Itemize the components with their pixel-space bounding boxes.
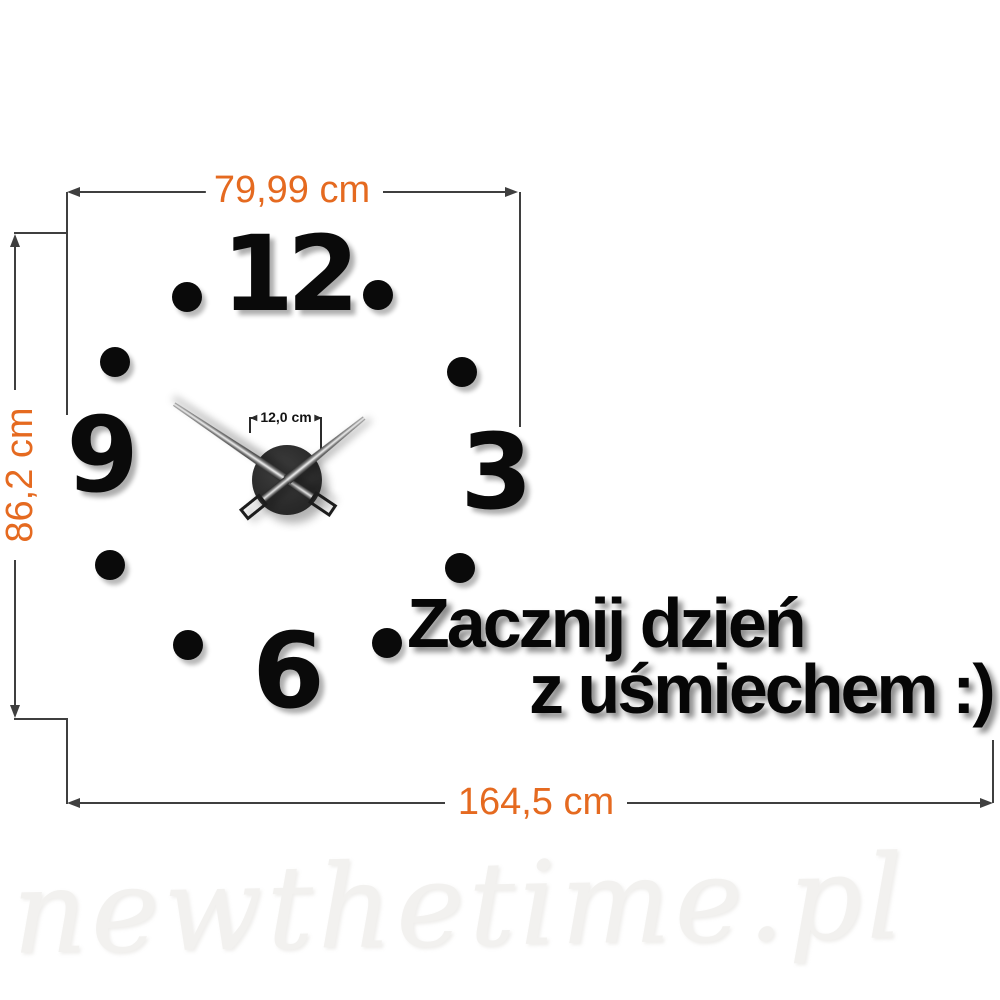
slogan-line-2: z uśmiechem :) [529, 654, 993, 724]
slogan-line-1: Zacznij dzień [407, 588, 804, 658]
hour-dot-2 [447, 357, 477, 387]
top-dimension-line-right [383, 191, 505, 193]
hour-dot-7 [173, 630, 203, 660]
hour-dot-1 [363, 280, 393, 310]
top-dimension-arrow-right-icon [505, 187, 518, 197]
clock-number-12: 12 [222, 222, 353, 326]
hub-extension-line-right [320, 417, 322, 452]
left-dimension-tick-bottom [14, 718, 68, 720]
clock-number-9: 9 [66, 403, 131, 507]
bottom-extension-line-right [992, 740, 994, 803]
hour-dot-11 [172, 282, 202, 312]
hub-dimension-label: 12,0 cm [257, 409, 314, 425]
top-extension-line-left [66, 192, 68, 415]
hour-dot-4 [445, 553, 475, 583]
bottom-dimension-arrow-left-icon [67, 798, 80, 808]
clock-number-3: 3 [460, 420, 525, 524]
top-dimension-arrow-left-icon [67, 187, 80, 197]
clock-number-6: 6 [252, 619, 317, 723]
left-dimension-label: 86,2 cm [0, 390, 40, 560]
top-dimension-label: 79,99 cm [206, 170, 378, 210]
left-dimension-line-bottom [14, 553, 16, 705]
left-dimension-line-top [14, 247, 16, 397]
bottom-dimension-arrow-right-icon [980, 798, 993, 808]
bottom-dimension-line-right [627, 802, 980, 804]
hour-dot-8 [95, 550, 125, 580]
bottom-extension-line-left [66, 719, 68, 804]
top-extension-line-right [519, 192, 521, 427]
product-diagram: 79,99 cm 86,2 cm 164,5 cm 12369 12,0 cm … [0, 0, 1000, 1000]
left-dimension-arrow-up-icon [10, 234, 20, 247]
left-dimension-arrow-down-icon [10, 705, 20, 718]
bottom-dimension-line-left [80, 802, 445, 804]
top-dimension-line-left [79, 191, 207, 193]
hour-dot-10 [100, 347, 130, 377]
left-dimension-tick-top [14, 232, 68, 234]
bottom-dimension-label: 164,5 cm [450, 782, 622, 822]
hour-dot-5 [372, 628, 402, 658]
watermark: newthetime.pl [11, 830, 908, 981]
hub-extension-line-left [249, 417, 251, 433]
